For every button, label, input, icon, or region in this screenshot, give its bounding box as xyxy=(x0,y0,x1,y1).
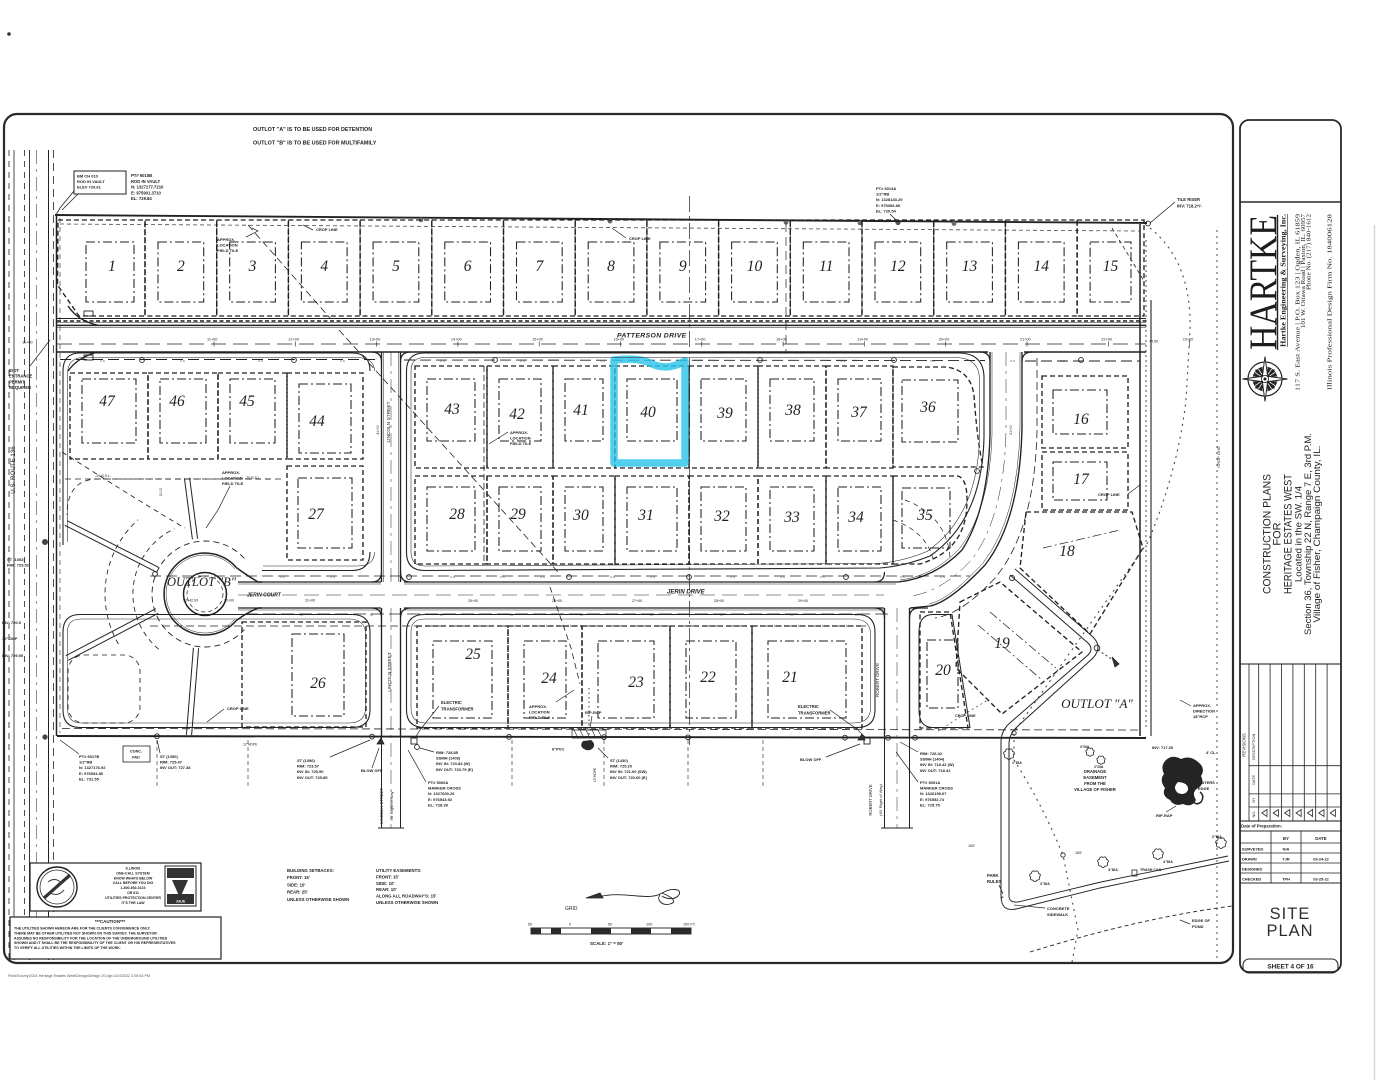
svg-text:41+00: 41+00 xyxy=(376,425,380,435)
svg-text:RIM: 725.20: RIM: 725.20 xyxy=(610,764,633,769)
svg-text:30: 30 xyxy=(572,507,589,524)
svg-text:28+00: 28+00 xyxy=(714,599,724,603)
svg-text:SSMH (1404): SSMH (1404) xyxy=(920,757,945,762)
svg-text:PT# 5000A: PT# 5000A xyxy=(428,780,448,785)
svg-text:KNOW WHATS BELOW: KNOW WHATS BELOW xyxy=(114,876,153,880)
svg-text:46: 46 xyxy=(169,393,185,410)
svg-text:LINCOLN STREET: LINCOLN STREET xyxy=(387,652,392,692)
svg-text:MARKER CROSS: MARKER CROSS xyxy=(920,786,953,791)
svg-text:CROP LINE: CROP LINE xyxy=(955,714,976,718)
svg-text:31+00: 31+00 xyxy=(305,599,315,603)
svg-text:15"HDPE: 15"HDPE xyxy=(593,767,597,782)
svg-text:19+00: 19+00 xyxy=(857,338,868,342)
svg-text:INV IN: 718.42 (W): INV IN: 718.42 (W) xyxy=(920,762,955,767)
svg-text:CROP LINE: CROP LINE xyxy=(629,236,651,241)
svg-text:Village of Fisher, Champaign C: Village of Fisher, Champaign County, IL. xyxy=(1312,446,1323,623)
svg-text:ST (1350): ST (1350) xyxy=(160,754,178,759)
svg-text:ST (1396): ST (1396) xyxy=(297,758,315,763)
svg-text:APPROX.: APPROX. xyxy=(217,237,235,242)
svg-text:12: 12 xyxy=(890,258,906,275)
svg-text:DRAINAGE: DRAINAGE xyxy=(1084,769,1107,774)
svg-text:3"DIA: 3"DIA xyxy=(1080,745,1090,749)
svg-text:150 FT.: 150 FT. xyxy=(683,923,696,927)
svg-text:14: 14 xyxy=(1034,258,1050,275)
svg-text:ELECTRIC: ELECTRIC xyxy=(441,700,462,705)
svg-text:1"DIA: 1"DIA xyxy=(1012,761,1022,765)
svg-text:S.S: S.S xyxy=(520,359,525,363)
svg-text:S.S: S.S xyxy=(930,359,935,363)
svg-text:23: 23 xyxy=(628,674,644,691)
svg-text:FRONT: 15': FRONT: 15' xyxy=(287,875,310,880)
svg-text:ROBERT DRIVE: ROBERT DRIVE xyxy=(868,784,873,815)
svg-text:N: 1327176.92: N: 1327176.92 xyxy=(79,765,106,770)
svg-text:CROP LINE: CROP LINE xyxy=(227,706,249,711)
svg-text:OUTLOT "A" IS TO BE USED FOR D: OUTLOT "A" IS TO BE USED FOR DETENTION xyxy=(253,127,372,133)
svg-text:RULES: RULES xyxy=(987,879,1001,884)
svg-text:THE UTILITIES SHOWN HEREON ARE: THE UTILITIES SHOWN HEREON ARE FOR THE C… xyxy=(14,927,151,931)
svg-text:APPROX.: APPROX. xyxy=(1193,703,1211,708)
svg-text:PT# 5001A: PT# 5001A xyxy=(920,780,940,785)
svg-text:9: 9 xyxy=(679,258,687,275)
svg-text:50: 50 xyxy=(608,923,612,927)
svg-text:14+00: 14+00 xyxy=(451,338,462,342)
svg-text:JERIN COURT: JERIN COURT xyxy=(247,593,282,599)
svg-text:PATTERSON DRIVE: PATTERSON DRIVE xyxy=(617,333,687,340)
svg-text:23+00: 23+00 xyxy=(1183,338,1194,342)
svg-text:N: 1328143.29: N: 1328143.29 xyxy=(876,197,903,202)
svg-text:BLOW OFF: BLOW OFF xyxy=(800,757,822,762)
svg-text:74.50: 74.50 xyxy=(1149,340,1158,344)
svg-text:BUILDING SETBACKS:: BUILDING SETBACKS: xyxy=(287,868,335,873)
svg-text:100: 100 xyxy=(646,923,652,927)
svg-text:ONE-CALL SYSTEM: ONE-CALL SYSTEM xyxy=(116,871,149,875)
svg-text:EASEMENT: EASEMENT xyxy=(1083,775,1107,780)
svg-text:60' Right of Way: 60' Right of Way xyxy=(389,791,394,820)
svg-text:ROBERT DRIVE: ROBERT DRIVE xyxy=(875,663,880,697)
svg-text:4' CL: 4' CL xyxy=(1206,750,1216,755)
svg-text:S.S: S.S xyxy=(450,575,455,579)
svg-text:GRID: GRID xyxy=(565,906,578,912)
svg-text:LOCATION: LOCATION xyxy=(510,435,531,440)
svg-text:18"RCP: 18"RCP xyxy=(1193,714,1208,719)
svg-text:S.S: S.S xyxy=(1010,359,1015,363)
svg-text:LINCOLN STREET: LINCOLN STREET xyxy=(379,788,384,824)
svg-text:LINCOLN STREET: LINCOLN STREET xyxy=(386,401,392,442)
svg-text:40: 40 xyxy=(640,404,656,421)
svg-text:CROP LINE: CROP LINE xyxy=(316,227,338,232)
svg-text:MARKER CROSS: MARKER CROSS xyxy=(428,786,461,791)
svg-text:12+00: 12+00 xyxy=(288,338,299,342)
svg-text:INV: 729.50: INV: 729.50 xyxy=(2,653,24,658)
svg-text:DATE: DATE xyxy=(1315,836,1327,841)
svg-text:S.S: S.S xyxy=(340,359,345,363)
svg-text:Field\Survey\2021 Heritage Est: Field\Survey\2021 Heritage Estates West\… xyxy=(8,974,150,978)
svg-text:***CAUTION***: ***CAUTION*** xyxy=(95,919,126,924)
svg-text:REAR: 25': REAR: 25' xyxy=(287,890,308,895)
svg-text:OUTLOT "A": OUTLOT "A" xyxy=(1061,696,1133,711)
svg-text:21: 21 xyxy=(782,669,798,686)
svg-text:FIELD TILE: FIELD TILE xyxy=(510,441,532,446)
svg-text:12"HDPE: 12"HDPE xyxy=(243,743,258,747)
svg-text:4: 4 xyxy=(320,258,328,275)
svg-text:21+00: 21+00 xyxy=(1009,425,1013,435)
svg-text:4"DIA: 4"DIA xyxy=(1108,868,1118,872)
svg-text:44: 44 xyxy=(309,413,325,430)
svg-text:RIP-RAP: RIP-RAP xyxy=(1156,813,1173,818)
svg-text:S.S: S.S xyxy=(730,575,735,579)
svg-text:ST (1052): ST (1052) xyxy=(7,557,25,562)
svg-text:13+00: 13+00 xyxy=(370,338,381,342)
svg-text:EL: 729.84: EL: 729.84 xyxy=(131,196,152,201)
svg-text:DESIGNED: DESIGNED xyxy=(1242,867,1263,872)
svg-text:S.S: S.S xyxy=(258,359,263,363)
svg-text:W: W xyxy=(370,613,373,617)
svg-text:10+00: 10+00 xyxy=(22,341,33,345)
svg-text:S.S: S.S xyxy=(1060,359,1065,363)
svg-text:CROP LINE: CROP LINE xyxy=(1216,446,1221,468)
svg-text:THERE MAY BE OTHER UTILITIES N: THERE MAY BE OTHER UTILITIES NOT SHOWN O… xyxy=(14,931,157,935)
svg-text:33: 33 xyxy=(783,509,800,526)
svg-text:SSMH (1403): SSMH (1403) xyxy=(436,756,461,761)
svg-text:JERIN DRIVE: JERIN DRIVE xyxy=(667,590,706,596)
svg-text:N: 1327600.26: N: 1327600.26 xyxy=(428,791,455,796)
svg-text:1-800-892-0123: 1-800-892-0123 xyxy=(121,886,146,890)
svg-text:32: 32 xyxy=(713,508,730,525)
svg-text:EL: 728.39: EL: 728.39 xyxy=(428,802,449,807)
svg-text:APPROX.: APPROX. xyxy=(529,704,547,709)
svg-text:165': 165' xyxy=(1075,851,1082,855)
svg-text:EDGE: EDGE xyxy=(1198,786,1210,791)
svg-text:1/2"RB: 1/2"RB xyxy=(79,760,92,765)
svg-text:-25 B.S.L.: -25 B.S.L. xyxy=(95,474,111,478)
svg-text:EL: 720.54: EL: 720.54 xyxy=(876,208,897,213)
svg-text:17: 17 xyxy=(1073,471,1090,488)
svg-text:VILLAGE OF FISHER: VILLAGE OF FISHER xyxy=(1074,787,1116,792)
svg-text:S.S: S.S xyxy=(840,359,845,363)
svg-text:TPH: TPH xyxy=(1282,877,1290,882)
svg-text:TRANSFORMER: TRANSFORMER xyxy=(798,710,831,715)
svg-text:03-24-22: 03-24-22 xyxy=(1313,857,1329,862)
svg-text:FROM THE: FROM THE xyxy=(1084,781,1106,786)
svg-text:DIRECTION: DIRECTION xyxy=(1193,708,1215,713)
svg-text:RIM: 729.52: RIM: 729.52 xyxy=(7,563,30,568)
svg-text:CALL BEFORE YOU DIG: CALL BEFORE YOU DIG xyxy=(113,881,154,885)
svg-text:POND: POND xyxy=(1192,924,1204,929)
svg-text:INV IN: 725.90: INV IN: 725.90 xyxy=(297,769,324,774)
svg-text:S.S: S.S xyxy=(940,575,945,579)
svg-text:S.S: S.S xyxy=(500,575,505,579)
svg-text:165': 165' xyxy=(968,844,975,848)
svg-text:EL: 731.55: EL: 731.55 xyxy=(79,776,100,781)
svg-text:17+00: 17+00 xyxy=(695,338,706,342)
svg-text:FIELD TILE: FIELD TILE xyxy=(222,481,244,486)
svg-text:RIM: 728.85: RIM: 728.85 xyxy=(436,750,459,755)
svg-text:SHOWN AND IT SHALL BE THE RESP: SHOWN AND IT SHALL BE THE RESPONSIBILITY… xyxy=(14,941,176,945)
svg-text:10"CMP: 10"CMP xyxy=(2,636,18,641)
svg-text:WATERS: WATERS xyxy=(1198,780,1215,785)
svg-text:CONCRETE: CONCRETE xyxy=(1047,906,1070,911)
svg-text:22: 22 xyxy=(700,669,716,686)
svg-text:25: 25 xyxy=(465,646,481,663)
svg-text:2"DIA: 2"DIA xyxy=(1212,835,1222,839)
svg-text:27: 27 xyxy=(308,506,325,523)
svg-text:INV: 718.2+/-: INV: 718.2+/- xyxy=(1177,204,1202,209)
svg-text:SURVEYED: SURVEYED xyxy=(1242,847,1264,852)
svg-text:21+00: 21+00 xyxy=(1020,338,1031,342)
svg-text:38: 38 xyxy=(784,402,801,419)
svg-text:S.S: S.S xyxy=(900,575,905,579)
svg-text:10: 10 xyxy=(747,258,763,275)
svg-text:6: 6 xyxy=(464,258,472,275)
svg-text:S.S: S.S xyxy=(100,359,105,363)
svg-text:25+00: 25+00 xyxy=(468,599,478,603)
svg-text:0: 0 xyxy=(569,923,571,927)
svg-text:DATE: DATE xyxy=(1251,775,1256,785)
svg-text:36: 36 xyxy=(919,399,936,416)
svg-text:S.S: S.S xyxy=(600,359,605,363)
svg-text:1: 1 xyxy=(108,258,116,275)
svg-text:S.S: S.S xyxy=(440,359,445,363)
svg-text:TILE RISER: TILE RISER xyxy=(1177,197,1200,202)
svg-text:3: 3 xyxy=(248,258,257,275)
svg-text:IDOT: IDOT xyxy=(9,368,19,373)
svg-text:E: 976543.92: E: 976543.92 xyxy=(428,797,453,802)
svg-text:N: 1326199.67: N: 1326199.67 xyxy=(920,791,947,796)
svg-text:TO VERIFY ALL UTILITIES WITHIN: TO VERIFY ALL UTILITIES WITHIN THE LIMIT… xyxy=(14,946,121,950)
svg-text:UTILITIES PROTECTION CENTER: UTILITIES PROTECTION CENTER xyxy=(105,896,161,900)
svg-text:INV OUT: 723.79 (E): INV OUT: 723.79 (E) xyxy=(436,767,474,772)
svg-text:35: 35 xyxy=(916,507,933,524)
svg-text:4"DIA: 4"DIA xyxy=(1163,860,1173,864)
svg-text:2: 2 xyxy=(177,258,185,275)
svg-text:8: 8 xyxy=(607,258,615,275)
svg-text:UNLESS OTHERWISE SHOWN: UNLESS OTHERWISE SHOWN xyxy=(287,897,349,902)
svg-text:OUTLOT "B" IS TO BE USED FOR M: OUTLOT "B" IS TO BE USED FOR MULTIFAMILY xyxy=(253,141,377,147)
svg-text:IT'S THE LAW: IT'S THE LAW xyxy=(122,901,146,905)
svg-text:ELEV 729.61: ELEV 729.61 xyxy=(77,185,102,190)
svg-text:22+00: 22+00 xyxy=(1101,338,1112,342)
svg-text:PT# 6014A: PT# 6014A xyxy=(876,186,896,191)
svg-text:U.S. ROUTE 136: U.S. ROUTE 136 xyxy=(10,446,17,494)
svg-text:41: 41 xyxy=(573,402,589,419)
svg-text:OUTLOT "B": OUTLOT "B" xyxy=(167,575,237,589)
svg-text:PAD: PAD xyxy=(132,756,140,760)
svg-text:Date of Preparation:: Date of Preparation: xyxy=(1241,824,1283,829)
svg-text:S.S: S.S xyxy=(540,575,545,579)
svg-text:S.S: S.S xyxy=(180,359,185,363)
svg-text:S.S: S.S xyxy=(820,575,825,579)
svg-text:45: 45 xyxy=(239,393,255,410)
svg-text:CROP LINE: CROP LINE xyxy=(1098,492,1120,497)
svg-text:NO.: NO. xyxy=(1251,811,1256,818)
svg-text:TJR: TJR xyxy=(1282,857,1290,862)
svg-text:BM CH 010: BM CH 010 xyxy=(77,174,99,179)
svg-text:UNLESS OTHERWISE SHOWN: UNLESS OTHERWISE SHOWN xyxy=(376,900,438,905)
svg-text:13: 13 xyxy=(962,258,978,275)
svg-text:BY: BY xyxy=(1251,797,1256,803)
svg-text:19: 19 xyxy=(994,635,1010,652)
svg-text:S.S: S.S xyxy=(780,575,785,579)
svg-text:18: 18 xyxy=(1059,543,1075,560)
svg-text:15+00: 15+00 xyxy=(532,338,543,342)
svg-text:(60' Right of Way): (60' Right of Way) xyxy=(878,783,883,815)
svg-text:PT# 6017B: PT# 6017B xyxy=(79,754,99,759)
svg-text:INV OUT: 718.32: INV OUT: 718.32 xyxy=(920,768,951,773)
svg-text:50: 50 xyxy=(528,923,532,927)
svg-text:SHEET 4 OF 16: SHEET 4 OF 16 xyxy=(1267,964,1314,971)
svg-text:DESCRIPTION: DESCRIPTION xyxy=(1251,734,1256,761)
svg-text:11+00: 11+00 xyxy=(207,338,217,342)
svg-text:2"DIA: 2"DIA xyxy=(1094,765,1104,769)
svg-text:11: 11 xyxy=(819,258,833,275)
svg-text:26+00: 26+00 xyxy=(552,599,562,603)
svg-text:JULIE: JULIE xyxy=(176,900,186,904)
svg-text:E: 975901.3710: E: 975901.3710 xyxy=(131,190,161,195)
svg-text:3"DIA: 3"DIA xyxy=(1040,882,1050,886)
svg-text:EL: 725.75: EL: 725.75 xyxy=(920,802,941,807)
svg-text:26: 26 xyxy=(310,675,326,692)
svg-text:29: 29 xyxy=(510,506,526,523)
svg-text:INV: 717.30: INV: 717.30 xyxy=(1152,745,1174,750)
svg-text:FIELD TILE: FIELD TILE xyxy=(217,248,239,253)
svg-text:PT# 6015B: PT# 6015B xyxy=(131,173,152,178)
svg-text:PERMIT: PERMIT xyxy=(9,379,25,384)
svg-text:39: 39 xyxy=(716,405,733,422)
svg-text:S.S: S.S xyxy=(610,575,615,579)
svg-text:ST (1430): ST (1430) xyxy=(610,758,628,763)
svg-text:ALONG ALL ROADWAY'S: 15': ALONG ALL ROADWAY'S: 15' xyxy=(376,894,436,899)
svg-text:SITE: SITE xyxy=(1270,905,1311,923)
svg-text:31: 31 xyxy=(637,507,654,524)
svg-text:20+00: 20+00 xyxy=(939,338,950,342)
svg-text:42: 42 xyxy=(509,406,525,423)
svg-text:CONC.: CONC. xyxy=(130,750,142,754)
svg-text:FIELD TILE: FIELD TILE xyxy=(529,715,551,720)
svg-text:BLOW OFF: BLOW OFF xyxy=(361,768,383,773)
svg-text:SIDE: 10': SIDE: 10' xyxy=(376,881,394,886)
svg-text:UTILITY EASEMENTS:: UTILITY EASEMENTS: xyxy=(376,868,422,873)
svg-text:24: 24 xyxy=(541,670,557,687)
svg-text:03-25-22: 03-25-22 xyxy=(1313,877,1329,882)
svg-text:Illinois Professional Design F: Illinois Professional Design Firm No. 18… xyxy=(1327,214,1334,390)
svg-text:Hartke Engineering & Surveying: Hartke Engineering & Surveying, Inc. xyxy=(1280,214,1288,347)
svg-text:SIDE: 10': SIDE: 10' xyxy=(287,882,305,887)
svg-text:LOCATION: LOCATION xyxy=(217,242,238,247)
svg-text:6"PVC: 6"PVC xyxy=(552,747,564,752)
svg-text:34: 34 xyxy=(847,509,864,526)
svg-text:ELECTRIC: ELECTRIC xyxy=(798,704,819,709)
svg-text:E: 975306.89: E: 975306.89 xyxy=(876,203,901,208)
svg-text:RIM: 723.57: RIM: 723.57 xyxy=(297,764,320,769)
svg-text:INV: 720.5: INV: 720.5 xyxy=(2,620,22,625)
svg-text:18+00: 18+00 xyxy=(776,338,787,342)
svg-text:FRONT: 15': FRONT: 15' xyxy=(376,874,399,879)
svg-text:ILLINOIS: ILLINOIS xyxy=(126,867,141,871)
svg-text:ROD IN VAULT: ROD IN VAULT xyxy=(77,179,105,184)
svg-text:43: 43 xyxy=(444,401,460,418)
svg-text:7: 7 xyxy=(535,258,544,275)
svg-text:LOCATION: LOCATION xyxy=(222,475,243,480)
svg-text:BY: BY xyxy=(1283,836,1289,841)
svg-text:APPROX.: APPROX. xyxy=(510,430,528,435)
svg-text:INV OUT: 725.85: INV OUT: 725.85 xyxy=(297,775,328,780)
svg-text:PLAN: PLAN xyxy=(1266,922,1313,940)
svg-text:28: 28 xyxy=(449,506,465,523)
svg-text:INV IN: 723.84 (W): INV IN: 723.84 (W) xyxy=(436,761,471,766)
svg-text:INV OUT: 727.38: INV OUT: 727.38 xyxy=(160,765,191,770)
svg-text:37: 37 xyxy=(850,404,868,421)
svg-text:15: 15 xyxy=(1103,258,1119,275)
svg-text:N/A: N/A xyxy=(1283,847,1290,852)
svg-text:INV IN: 721.00 (SW): INV IN: 721.00 (SW) xyxy=(610,769,647,774)
svg-text:APPROX.: APPROX. xyxy=(222,470,240,475)
svg-text:REQUIRED: REQUIRED xyxy=(9,385,31,390)
svg-text:E: 976534.80: E: 976534.80 xyxy=(79,771,104,776)
svg-text:S.S: S.S xyxy=(330,575,335,579)
svg-text:ROD IN VAULT: ROD IN VAULT xyxy=(131,179,161,184)
svg-text:OR 811: OR 811 xyxy=(127,891,139,895)
svg-text:Phone No. (217) 840-1612: Phone No. (217) 840-1612 xyxy=(1306,214,1313,290)
svg-text:PARK: PARK xyxy=(987,873,999,878)
svg-text:47: 47 xyxy=(99,393,116,410)
svg-text:EDGE OF: EDGE OF xyxy=(1192,918,1211,923)
svg-text:5: 5 xyxy=(392,258,400,275)
svg-text:REAR: 10': REAR: 10' xyxy=(376,887,397,892)
svg-text:RIM: 726.42: RIM: 726.42 xyxy=(920,751,943,756)
svg-text:TRANSFORMER: TRANSFORMER xyxy=(441,706,474,711)
svg-text:ENTRANCE: ENTRANCE xyxy=(9,374,32,379)
svg-text:E: 976552.74: E: 976552.74 xyxy=(920,797,945,802)
svg-text:CHECKED: CHECKED xyxy=(1242,877,1261,882)
svg-text:16: 16 xyxy=(1073,411,1089,428)
svg-text:ASSUMES NO RESPONSIBILITY FOR: ASSUMES NO RESPONSIBILITY FOR THE LOCATI… xyxy=(14,936,168,940)
svg-text:SCALE: 1" = 50': SCALE: 1" = 50' xyxy=(590,941,623,946)
svg-text:27+00: 27+00 xyxy=(632,599,642,603)
svg-text:RIP-RAP: RIP-RAP xyxy=(585,710,602,715)
svg-text:SIDEWALK: SIDEWALK xyxy=(1047,912,1068,917)
svg-text:29+00: 29+00 xyxy=(798,599,808,603)
svg-text:INV OUT: 720.60 (E): INV OUT: 720.60 (E) xyxy=(610,775,648,780)
svg-text:REVISIONS: REVISIONS xyxy=(1242,733,1247,757)
svg-text:20: 20 xyxy=(935,662,951,679)
svg-text:DRAWN: DRAWN xyxy=(1242,857,1257,862)
svg-text:1/2"RB: 1/2"RB xyxy=(876,192,889,197)
svg-text:20.00: 20.00 xyxy=(159,488,163,497)
svg-text:S.S: S.S xyxy=(650,575,655,579)
svg-text:LOCATION: LOCATION xyxy=(529,709,550,714)
svg-text:N: 1327177.7210: N: 1327177.7210 xyxy=(131,185,164,190)
svg-text:S.S: S.S xyxy=(280,575,285,579)
svg-text:RIM: 725.47: RIM: 725.47 xyxy=(160,760,183,765)
